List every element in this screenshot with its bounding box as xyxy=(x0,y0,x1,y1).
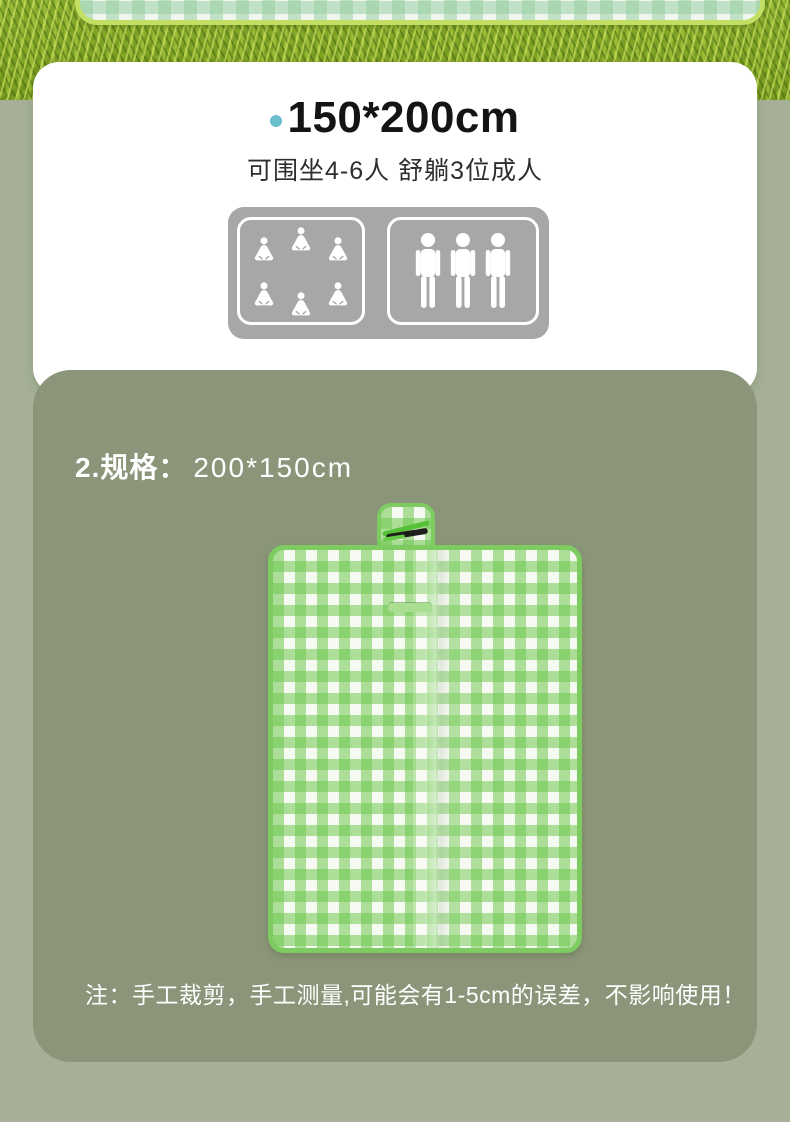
mat-body xyxy=(268,545,582,953)
measurement-note: 注：手工裁剪，手工测量,可能会有1-5cm的误差，不影响使用！ xyxy=(85,976,746,1010)
size-detail-card: 2.规格：200*150cm 注：手工裁剪，手工测量,可能会有1-5cm的误差，… xyxy=(33,370,757,1062)
spec-heading-value: 200*150cm xyxy=(193,452,353,483)
bullet-dot-icon xyxy=(270,115,282,127)
sitting-person-icon xyxy=(325,234,351,266)
sitting-person-icon xyxy=(325,279,351,311)
standing-person-icon xyxy=(448,232,478,310)
capacity-subtitle: 可围坐4-6人 舒躺3位成人 xyxy=(33,151,757,187)
product-detail-page: 150*200cm 可围坐4-6人 舒躺3位成人 2.规格：200*150cm … xyxy=(0,0,790,1122)
size-title-row: 150*200cm xyxy=(33,95,757,141)
sitting-person-icon xyxy=(288,224,314,256)
picnic-mat-illustration xyxy=(268,503,582,953)
spec-heading: 2.规格：200*150cm xyxy=(75,446,353,486)
mat-elastic-strap xyxy=(388,603,432,612)
standing-person-icon xyxy=(413,232,443,310)
seating-capacity-box xyxy=(237,217,365,325)
spec-heading-label: 2.规格： xyxy=(75,452,187,483)
capacity-panel xyxy=(228,207,549,339)
size-title: 150*200cm xyxy=(287,95,519,141)
sitting-person-icon xyxy=(251,279,277,311)
standing-person-icon xyxy=(483,232,513,310)
picnic-mat-top-edge xyxy=(75,0,765,25)
lying-capacity-box xyxy=(387,217,539,325)
sitting-person-icon xyxy=(251,234,277,266)
spec-card: 150*200cm 可围坐4-6人 舒躺3位成人 xyxy=(33,62,757,394)
sitting-person-icon xyxy=(288,289,314,321)
